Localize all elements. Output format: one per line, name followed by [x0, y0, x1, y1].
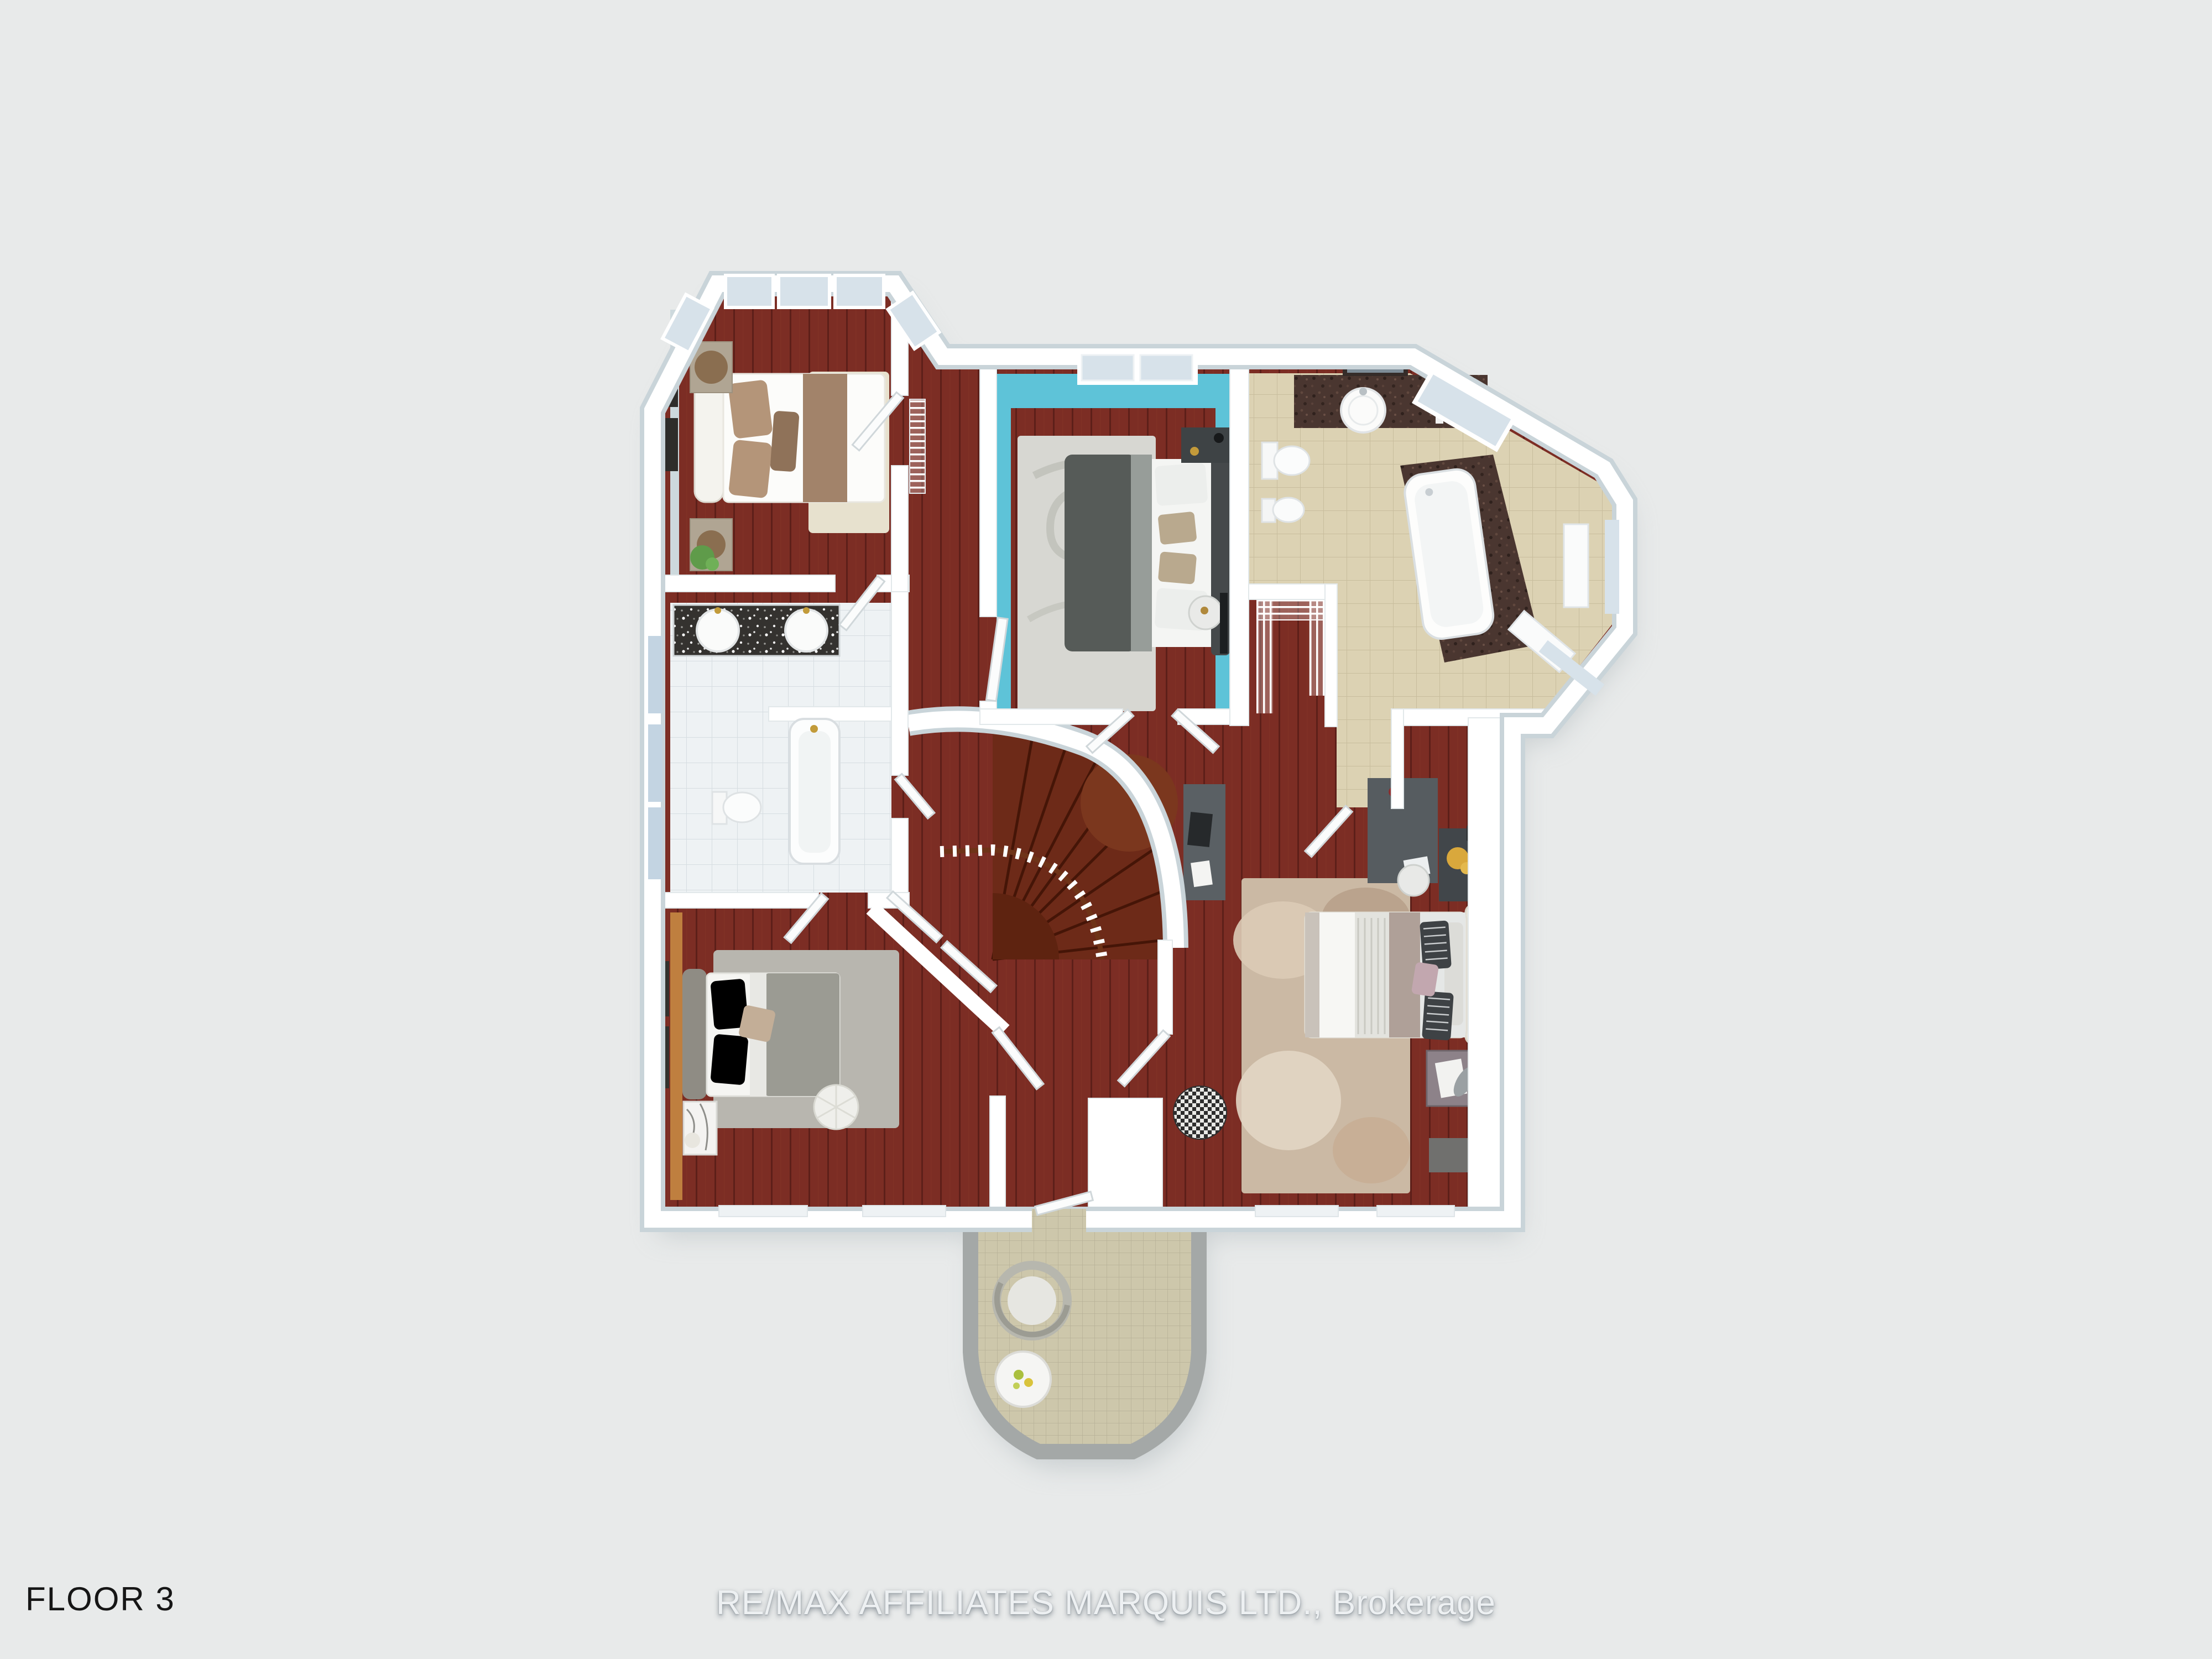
- pillow-striped: [1422, 991, 1454, 1040]
- papers: [1191, 860, 1213, 887]
- desk-accessory: [1190, 447, 1199, 456]
- chair-cushion: [1008, 1276, 1056, 1325]
- wall-art: [664, 418, 678, 471]
- flower-icon: [1024, 1378, 1033, 1387]
- marble-nightstand: [684, 1102, 717, 1155]
- floor-plan-page: FLOOR 3 RE/MAX AFFILIATES MARQUIS LTD., …: [0, 0, 2212, 1659]
- bathroom-main: [670, 603, 891, 893]
- wall: [891, 592, 908, 775]
- desk: [1181, 427, 1230, 463]
- pouf: [814, 1085, 858, 1129]
- balcony-parapet: [971, 1217, 1199, 1452]
- sink-icon: [785, 609, 827, 651]
- wall: [1249, 584, 1337, 599]
- bed-runner: [803, 374, 847, 502]
- pillow: [770, 411, 799, 472]
- window-icon: [1377, 1206, 1454, 1217]
- window-icon: [1082, 355, 1134, 380]
- bed-duvet: [1065, 455, 1136, 651]
- bed-duvet: [1319, 912, 1355, 1037]
- wall-paint-band: [670, 912, 682, 1200]
- window-icon: [648, 724, 662, 802]
- flowers-icon: [685, 1133, 700, 1148]
- pillow: [728, 440, 773, 499]
- floor-plan: [0, 0, 2212, 1659]
- table-accessory: [1201, 607, 1208, 614]
- pillow: [738, 1005, 776, 1043]
- flower-icon: [1013, 1383, 1020, 1389]
- bed-blanket-fold: [1131, 455, 1152, 651]
- wall: [653, 575, 835, 592]
- pillow: [1157, 512, 1197, 545]
- pillow: [728, 379, 773, 439]
- round-table: [1398, 865, 1429, 896]
- wall: [1325, 584, 1337, 727]
- bidet-icon: [1273, 498, 1304, 522]
- bay-window-icon: [835, 275, 884, 307]
- pillow: [1158, 551, 1197, 585]
- window-icon: [648, 636, 662, 713]
- faucet-icon: [803, 607, 810, 614]
- window-icon: [648, 807, 662, 879]
- wall: [1088, 1098, 1162, 1221]
- wall: [1391, 709, 1404, 808]
- bed-foot-band: [1305, 912, 1319, 1037]
- pillow-striped: [1420, 920, 1452, 969]
- houndstooth-pouf: [1173, 1086, 1227, 1139]
- bed-headboard: [695, 380, 723, 502]
- wall: [980, 709, 1123, 724]
- window-icon: [719, 1206, 807, 1217]
- pillow: [1155, 463, 1208, 506]
- brokerage-watermark: RE/MAX AFFILIATES MARQUIS LTD., Brokerag…: [0, 1586, 2212, 1620]
- plant-leaf: [706, 557, 719, 571]
- laptop-icon: [1187, 812, 1213, 847]
- wire-shelf: [1309, 596, 1326, 696]
- wire-shelf: [1256, 596, 1273, 713]
- window-icon: [1255, 1206, 1338, 1217]
- rug-texture: [1333, 1117, 1410, 1183]
- faucet-icon: [714, 607, 721, 614]
- wall: [990, 1096, 1005, 1221]
- toilet-icon: [723, 792, 761, 822]
- window-icon: [1605, 520, 1619, 614]
- window-icon: [863, 1206, 946, 1217]
- wall: [980, 357, 997, 617]
- tv-icon: [1220, 593, 1228, 654]
- lamp-icon: [1214, 433, 1224, 443]
- bathtub-basin: [799, 731, 831, 853]
- bay-window-icon: [779, 275, 830, 307]
- bay-window-icon: [726, 275, 773, 307]
- balcony: [971, 1217, 1199, 1452]
- floor-vent: [910, 399, 925, 493]
- bay-cabinet: [1564, 524, 1588, 607]
- balcony-table: [995, 1352, 1051, 1407]
- pillow: [1411, 962, 1439, 997]
- window-icon: [1140, 355, 1192, 380]
- faucet-icon: [1359, 388, 1367, 395]
- toilet-icon: [1274, 446, 1310, 475]
- sink-icon: [697, 609, 739, 651]
- rug-texture: [1236, 1051, 1341, 1150]
- bed-duvet: [765, 973, 839, 1096]
- wall: [653, 893, 818, 908]
- bed-headboard: [682, 969, 707, 1099]
- plant-icon: [1014, 1370, 1024, 1380]
- wall: [1158, 940, 1172, 1034]
- wall: [891, 466, 908, 592]
- wall: [1230, 357, 1249, 726]
- pillow: [710, 1034, 748, 1085]
- tub-faucet-icon: [810, 725, 818, 733]
- round-table: [695, 351, 728, 384]
